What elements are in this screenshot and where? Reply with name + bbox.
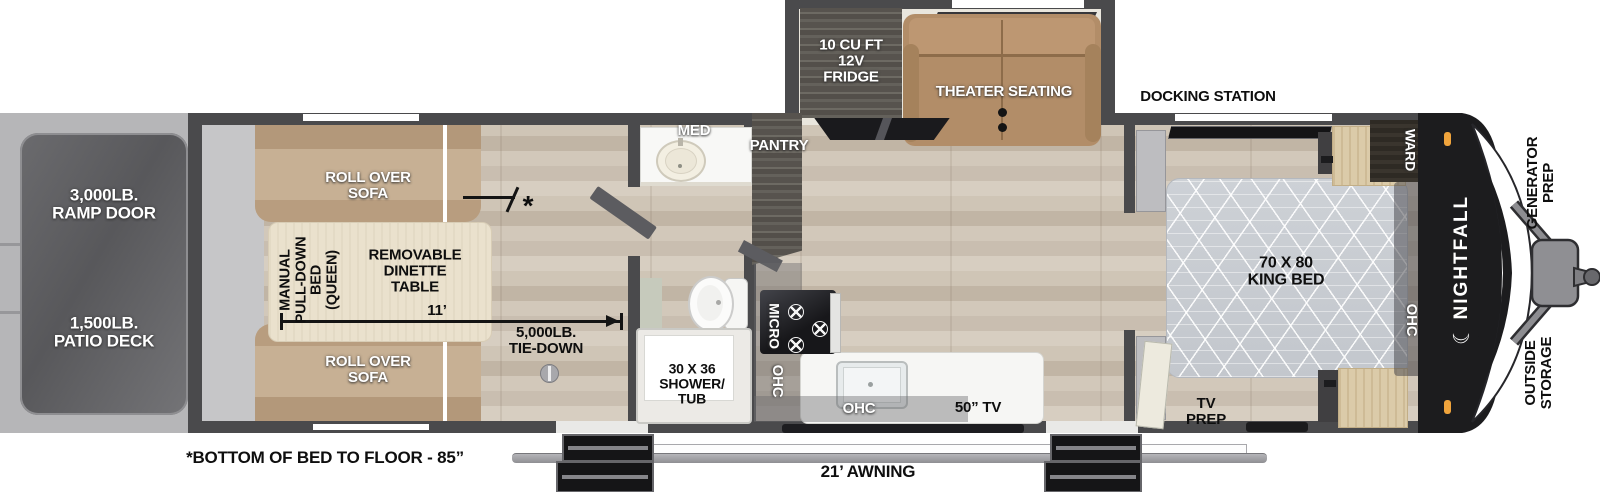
sofa-top-backrest — [255, 125, 481, 149]
med-label: MED — [678, 123, 711, 139]
slide-mechanism-divider — [875, 118, 892, 140]
vanity-sink-basin — [665, 148, 697, 174]
king-bed-label: 70 X 80 KING BED — [1248, 255, 1325, 290]
marker-light-bottom — [1444, 400, 1451, 414]
sofa-bottom-backrest — [255, 397, 481, 421]
step-tread — [568, 446, 649, 450]
cupholder-icon-1 — [998, 108, 1007, 117]
garage-top-window — [303, 114, 419, 121]
docking-station-label: DOCKING STATION — [1140, 89, 1276, 105]
burner-icon-3 — [788, 337, 804, 353]
tv-prep-label: TV PREP — [1186, 396, 1226, 428]
tv-50-strip — [782, 424, 1024, 433]
docking-station-shelf — [1168, 126, 1332, 139]
awning-label: 21’ AWNING — [821, 463, 916, 481]
slide-wall-left — [785, 0, 799, 125]
garage-bath-wall-upper — [628, 125, 640, 187]
entry-step-right-2 — [1044, 461, 1142, 492]
entry-step-left-2 — [556, 461, 654, 492]
bedroom-ohc-label: OHC — [1403, 304, 1419, 337]
ramp-door-panel — [20, 133, 188, 415]
tie-down-label: 5,000LB. TIE-DOWN — [509, 325, 583, 357]
fridge-label: 10 CU FT 12V FRIDGE — [819, 38, 882, 87]
vanity-sink — [656, 140, 706, 182]
bottom-note-label: *BOTTOM OF BED TO FLOOR - 85” — [186, 449, 464, 467]
toilet-flush-dot — [716, 300, 721, 305]
patio-deck-label: 1,500LB. PATIO DECK — [54, 315, 154, 352]
tie-down-slot — [548, 366, 551, 381]
rv-floorplan: 3,000LB. RAMP DOOR 1,500LB. PATIO DECK R… — [0, 0, 1600, 492]
theater-arm-right — [1085, 44, 1101, 142]
bedroom-panel-upper — [1136, 130, 1166, 212]
rear-wall — [188, 113, 202, 433]
garage-length-label: 11’ — [427, 303, 446, 319]
brand-logo: ☾ NIGHTFALL — [1449, 195, 1475, 345]
burner-icon-2 — [812, 321, 828, 337]
kitchen-ohc-vertical-label: OHC — [769, 365, 785, 398]
shower-label: 30 X 36 SHOWER/ TUB — [659, 361, 725, 406]
entry-threshold-left — [556, 421, 648, 433]
kitchen-ohc-lower-label: OHC — [843, 401, 876, 417]
asterisk-line — [463, 196, 515, 199]
sofa-bottom-label: ROLL OVER SOFA — [325, 354, 410, 386]
garage-bottom-window — [313, 424, 429, 430]
entry-step-right-1 — [1050, 434, 1142, 462]
brand-name: NIGHTFALL — [1451, 195, 1473, 320]
marker-light-top — [1444, 132, 1451, 146]
step-tread — [562, 475, 649, 479]
theater-center-seam — [1001, 20, 1003, 140]
pantry-label: PANTRY — [750, 138, 809, 154]
pantry-cabinet — [752, 113, 802, 241]
dimension-cap-right — [620, 313, 623, 330]
entry-threshold-right — [1046, 421, 1138, 433]
nightstand-top-handle — [1321, 156, 1333, 163]
tv-50-label: 50” TV — [955, 400, 1001, 416]
ramp-door-label: 3,000LB. RAMP DOOR — [52, 187, 156, 224]
nightstand-bottom — [1338, 368, 1408, 428]
bedroom-wall-lower — [1124, 330, 1135, 421]
pulldown-bed-label: MANUAL PULL-DOWN BED (QUEEN) — [279, 237, 342, 324]
entry-step-left-1 — [562, 434, 654, 462]
burner-icon-1 — [788, 304, 804, 320]
vanity-faucet — [678, 138, 683, 146]
sofa-top-label: ROLL OVER SOFA — [325, 170, 410, 202]
slide-wall-right — [1101, 0, 1115, 125]
asterisk-mark: * — [523, 191, 534, 221]
wardrobe-label: WARD — [1402, 129, 1417, 171]
outside-storage-label: OUTSIDE STORAGE — [1523, 337, 1555, 410]
tie-down-anchor-icon — [540, 364, 559, 383]
theater-label: THEATER SEATING — [936, 84, 1072, 100]
nightstand-bottom-handle — [1324, 380, 1336, 387]
range-edge-strip — [830, 293, 841, 353]
bedroom-wall-upper — [1124, 125, 1135, 213]
sofa-top-front-lip — [255, 200, 481, 222]
slide-window — [952, 0, 1084, 8]
cupholder-icon-2 — [998, 123, 1007, 132]
bedroom-tv-strip — [1246, 422, 1308, 432]
docking-window — [1175, 114, 1332, 121]
kitchen-sink-drain — [868, 382, 873, 387]
generator-prep-label: GENERATOR PREP — [1525, 137, 1557, 230]
dimension-arrow-right — [606, 315, 619, 327]
propane-box — [1532, 240, 1578, 306]
step-tread — [1050, 475, 1137, 479]
slide-mechanism — [810, 118, 954, 140]
crescent-moon-icon: ☾ — [1449, 325, 1475, 345]
dinette-label: REMOVABLE DINETTE TABLE — [369, 248, 462, 297]
vanity-sink-drain — [678, 164, 682, 168]
micro-label: MICRO — [766, 303, 781, 349]
step-tread — [1056, 446, 1137, 450]
coupler-ball — [1584, 269, 1600, 285]
front-cap-hitch — [1416, 108, 1600, 438]
toilet-bowl — [688, 276, 734, 332]
ramp-frame-line-1 — [0, 243, 22, 246]
ramp-frame-line-2 — [0, 311, 22, 314]
